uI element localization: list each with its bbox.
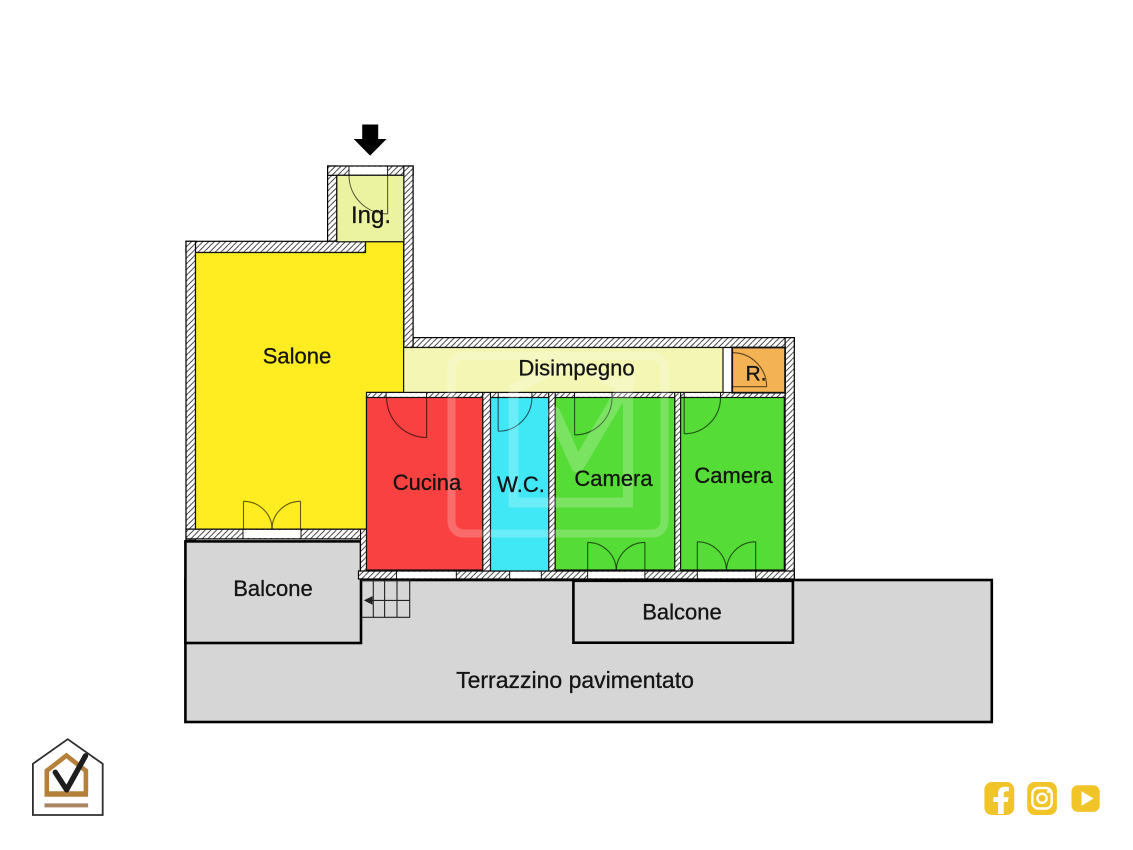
svg-text:Cucina: Cucina — [393, 470, 462, 495]
svg-text:Terrazzino pavimentato: Terrazzino pavimentato — [456, 667, 694, 693]
svg-text:Balcone: Balcone — [642, 600, 722, 625]
svg-text:Ing.: Ing. — [351, 202, 391, 229]
svg-text:Camera: Camera — [694, 463, 773, 488]
svg-text:R.: R. — [746, 363, 767, 386]
svg-text:Camera: Camera — [574, 466, 653, 491]
svg-text:W.C.: W.C. — [497, 472, 545, 497]
svg-text:Disimpegno: Disimpegno — [518, 356, 634, 381]
svg-text:Salone: Salone — [263, 344, 332, 369]
svg-text:Balcone: Balcone — [233, 576, 313, 601]
